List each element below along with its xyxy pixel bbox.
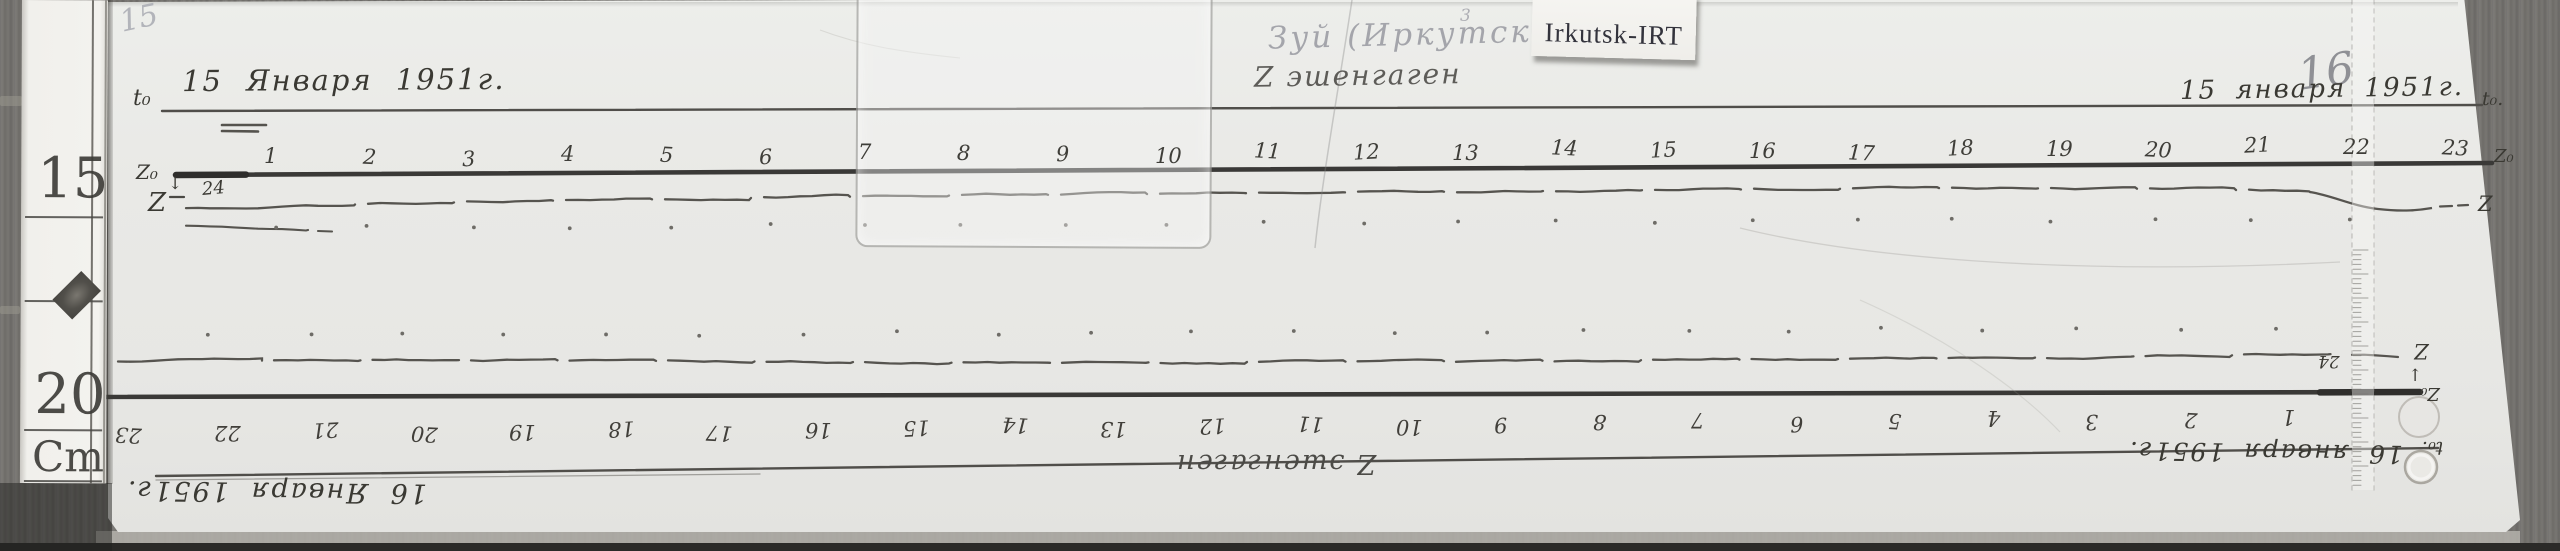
hour-label-bottom: 7 (1691, 409, 1704, 430)
ruler-diamond-mark (52, 271, 101, 319)
station-name-note: Зуй (Иркутск) (1268, 16, 1548, 54)
archive-label-tag: Irkutsk-IRT (1531, 0, 1697, 60)
trace-start-hour-note-top: 24 (201, 179, 225, 199)
photographed-magnetogram-scan: 15 20 Cm 15 16 Зуй (Иркутск) 3 Z эшенгаг… (0, 0, 2560, 551)
hour-label-top: 18 (1946, 137, 1974, 159)
hour-label-top: 17 (1847, 142, 1875, 164)
hour-label-top: 15 (1649, 139, 1677, 161)
hour-label-top: 3 (461, 148, 475, 170)
hour-label-top: 9 (1055, 144, 1069, 166)
table-edge-shadow (0, 543, 2560, 551)
hour-label-bottom: 9 (1493, 414, 1507, 436)
hour-label-top: 23 (2441, 137, 2469, 159)
z-label-bottom-right: Z (2414, 340, 2429, 361)
wood-corner-shadow (0, 483, 112, 551)
hour-label-bottom: 13 (1100, 418, 1127, 439)
wood-scratch (0, 306, 20, 314)
hour-label-top: 5 (659, 145, 673, 167)
hour-label-top: 11 (1253, 140, 1281, 162)
t0-label-top-right: t₀. (2482, 90, 2503, 109)
ruler-paper-seam (107, 0, 113, 484)
z0-label-bottom-right: Z₀ (2420, 384, 2440, 402)
hour-label-top: 12 (1352, 141, 1380, 163)
ruler-unit-cm: Cm (32, 432, 104, 481)
hour-label-bottom: 22 (214, 422, 241, 443)
t0-label-top-left: t₀ (133, 88, 151, 110)
hour-label-top: 10 (1155, 146, 1182, 167)
archive-label-text: Irkutsk-IRT (1544, 17, 1683, 52)
hour-label-top: 2 (362, 147, 376, 169)
hour-label-bottom: 19 (509, 421, 536, 442)
z0-arrow-down-icon: ↓ (168, 176, 182, 193)
hour-label-bottom: 18 (607, 417, 635, 439)
ruler-mark-15: 15 (37, 146, 109, 211)
hour-label-top: 7 (858, 142, 871, 163)
hour-label-bottom: 16 (805, 419, 832, 440)
date-top-left: 15 Января 1951г. (182, 65, 506, 96)
hour-label-bottom: 14 (1001, 413, 1029, 435)
hour-label-top: 1 (264, 146, 277, 167)
film-patch-overlay (855, 0, 1212, 249)
hour-label-bottom: 6 (1789, 412, 1803, 434)
hour-label-bottom: 12 (1198, 415, 1226, 437)
hour-label-top: 20 (2144, 140, 2172, 162)
hour-label-bottom: 3 (2084, 411, 2098, 433)
hour-label-top: 22 (2343, 137, 2370, 158)
ruler-division-line (24, 429, 102, 431)
date-top-right: 15 января 1951г. (2180, 74, 2464, 104)
hour-label-top: 4 (561, 144, 574, 165)
date-bottom-left: 16 Января 1951г. (126, 476, 427, 506)
hour-label-bottom: 5 (1887, 410, 1901, 432)
hour-label-top: 21 (2243, 135, 2271, 157)
hour-label-bottom: 17 (705, 421, 733, 443)
hour-label-bottom: 4 (1987, 407, 2000, 428)
hour-label-bottom: 21 (311, 419, 339, 441)
instrument-note-bottom: Z эшенгаген (1175, 450, 1376, 477)
instrument-note: Z эшенгаген (1254, 60, 1462, 92)
ruler-division-line (25, 216, 103, 218)
hour-label-top: 8 (956, 143, 970, 165)
hour-label-top: 16 (1749, 141, 1776, 162)
page-number-left: 15 (117, 0, 161, 37)
z0-label-top-right: Z₀ (2494, 148, 2514, 166)
hour-label-bottom: 8 (1592, 411, 1606, 433)
hour-label-bottom: 15 (902, 416, 930, 438)
station-superscript-note: 3 (1460, 8, 1471, 25)
paper-top-edge-shadow (108, 2, 2458, 7)
hour-label-top: 19 (2046, 139, 2073, 160)
hour-label-bottom: 1 (2282, 406, 2295, 427)
z-label-top-left: Z (148, 190, 166, 216)
z0-label-top-left: Z₀ (136, 162, 158, 182)
hour-label-bottom: 11 (1296, 412, 1324, 434)
z-label-top-right: Z (2478, 194, 2493, 215)
trace-start-hour-note-bottom: 24 (2318, 352, 2340, 369)
date-bottom-right: 16 января 1951г. (2128, 438, 2403, 467)
wood-scratch (0, 96, 22, 106)
hour-label-bottom: 23 (114, 424, 142, 446)
hour-label-bottom: 2 (2183, 408, 2197, 430)
ruler-mark-20: 20 (34, 362, 106, 427)
t0-label-bottom-right: t₀. (2422, 438, 2443, 457)
hour-label-top: 14 (1550, 138, 1578, 160)
left-cm-ruler: 15 20 Cm (20, 0, 108, 483)
hour-label-bottom: 20 (410, 422, 438, 444)
hour-label-top: 6 (758, 146, 772, 168)
hour-label-bottom: 10 (1396, 416, 1423, 437)
hour-label-top: 13 (1452, 143, 1479, 164)
